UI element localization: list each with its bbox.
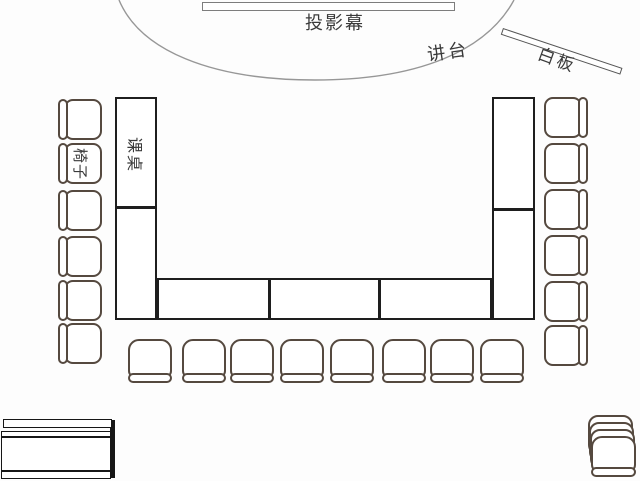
chair (330, 339, 374, 383)
chair (280, 339, 324, 383)
chair (480, 339, 524, 383)
chair (182, 339, 226, 383)
chair (544, 235, 588, 276)
desk-row-bottom (157, 278, 492, 320)
chair-back (58, 323, 68, 364)
desk-column-left (115, 97, 157, 320)
chair (58, 190, 102, 231)
desk-column-right (492, 97, 535, 320)
desk-divider (493, 208, 534, 211)
chair-label: 椅子 (59, 144, 103, 184)
chair-back (578, 97, 588, 138)
chair (430, 339, 474, 383)
chair-back (280, 373, 324, 383)
chair-back (230, 373, 274, 383)
chair-seat (544, 143, 582, 184)
chair-seat (64, 99, 102, 140)
chair-seat (64, 323, 102, 364)
chair-back (480, 373, 524, 383)
chair (58, 280, 102, 321)
chair-seat (64, 280, 102, 321)
chair (544, 281, 588, 322)
chair-back (182, 373, 226, 383)
chair-back (330, 373, 374, 383)
chair-back (578, 189, 588, 230)
desk-divider (268, 279, 271, 319)
chair-back (128, 373, 172, 383)
chair-back (578, 325, 588, 366)
chair-back (58, 236, 68, 277)
chair-back (382, 373, 426, 383)
chair-back (591, 467, 636, 477)
chair-back (58, 99, 68, 140)
chair-seat (544, 325, 582, 366)
chair (230, 339, 274, 383)
desk-label: 课桌 (114, 135, 158, 175)
desk-divider (116, 206, 156, 209)
chair-seat (64, 236, 102, 277)
chair-back (58, 190, 68, 231)
chair (58, 323, 102, 364)
projection-screen-label: 投影幕 (275, 12, 395, 32)
chair-seat (544, 235, 582, 276)
chair-back (578, 281, 588, 322)
chair-seat (544, 189, 582, 230)
side-table (0, 417, 116, 481)
side-table-top (3, 419, 112, 428)
chair (544, 325, 588, 366)
chair (382, 339, 426, 383)
desk-divider (378, 279, 381, 319)
side-table-base (1, 471, 111, 479)
chair (544, 143, 588, 184)
chair-seat (544, 97, 582, 138)
chair-back (58, 280, 68, 321)
chair (591, 436, 636, 477)
chair-back (578, 143, 588, 184)
chair (544, 97, 588, 138)
chair-seat (544, 281, 582, 322)
side-table-body (1, 437, 111, 471)
chair-back (430, 373, 474, 383)
chair-back (578, 235, 588, 276)
chair (58, 236, 102, 277)
classroom-floor-plan: 投影幕 讲台 白板 课桌 椅子 (0, 0, 640, 481)
chair-seat (64, 190, 102, 231)
chair (128, 339, 172, 383)
chair (58, 99, 102, 140)
chair (544, 189, 588, 230)
stacked-chairs (588, 415, 638, 479)
